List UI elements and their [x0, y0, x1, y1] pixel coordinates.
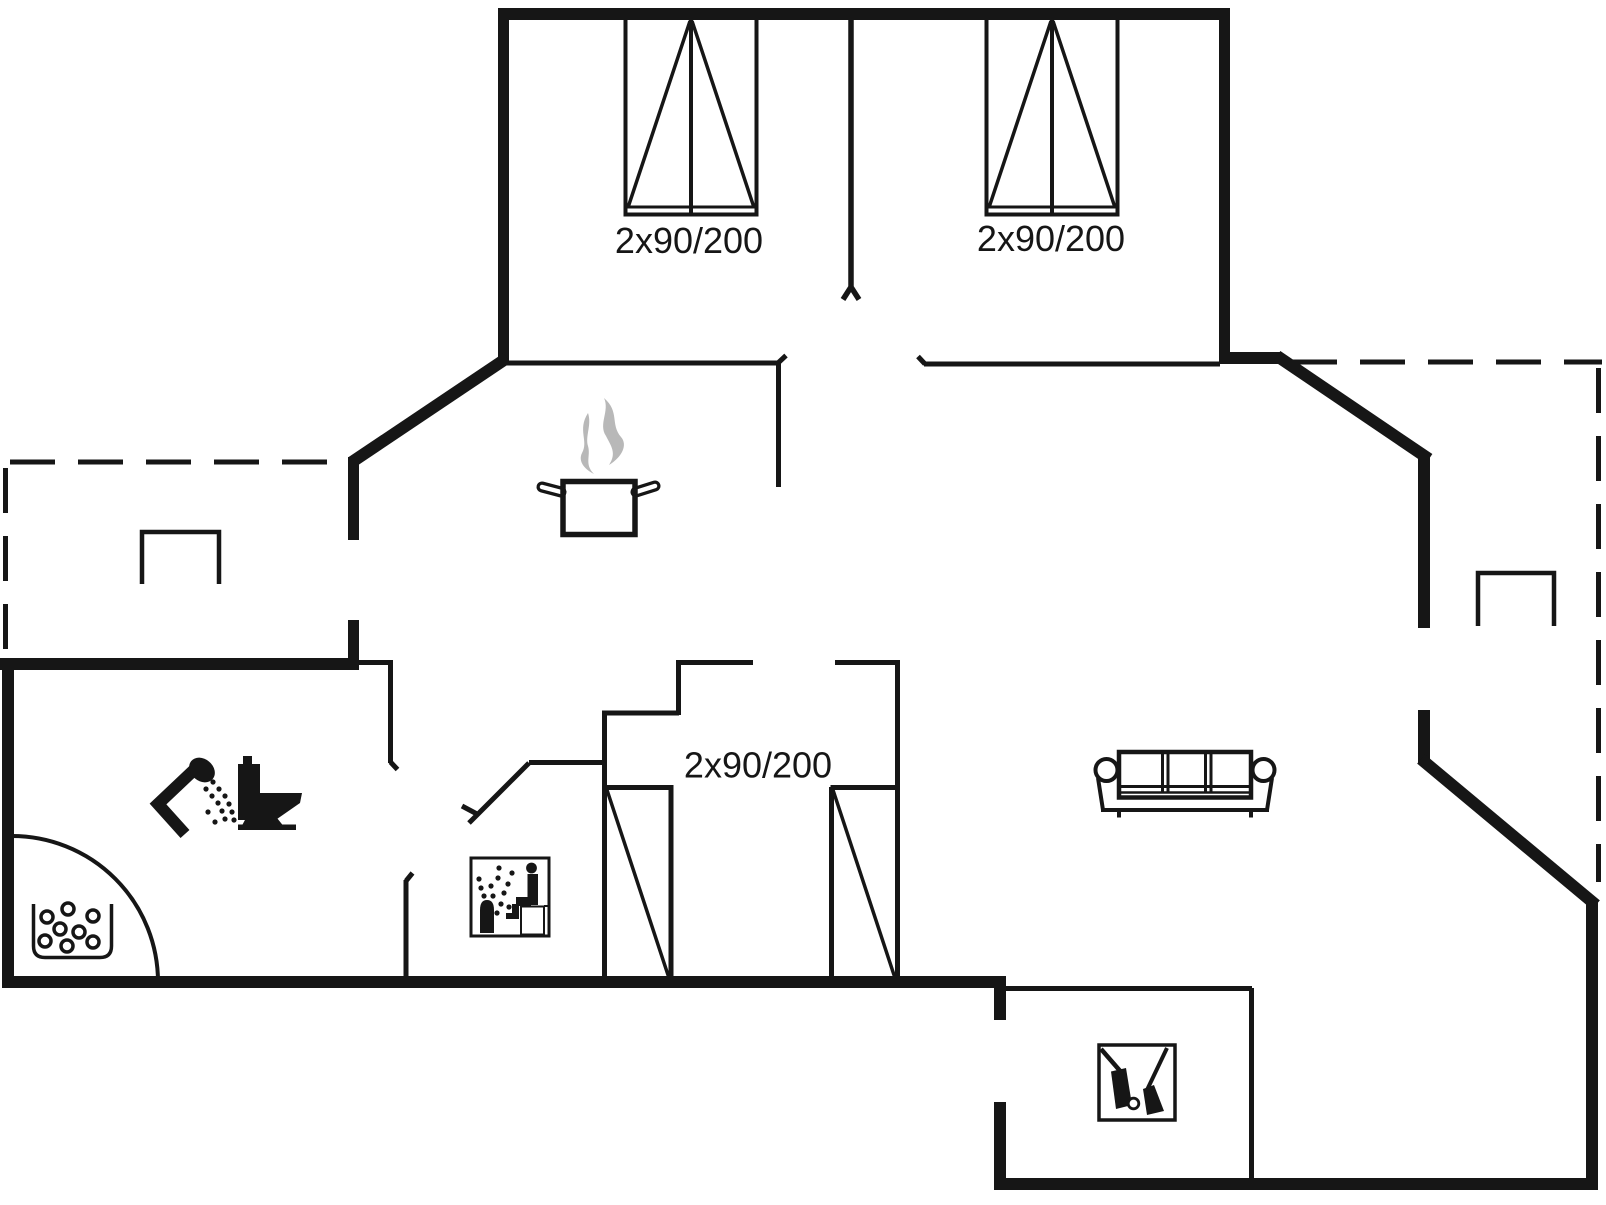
svg-text:2x90/200: 2x90/200	[977, 218, 1125, 259]
svg-text:2x90/200: 2x90/200	[615, 220, 763, 261]
svg-text:2x90/200: 2x90/200	[684, 745, 832, 786]
